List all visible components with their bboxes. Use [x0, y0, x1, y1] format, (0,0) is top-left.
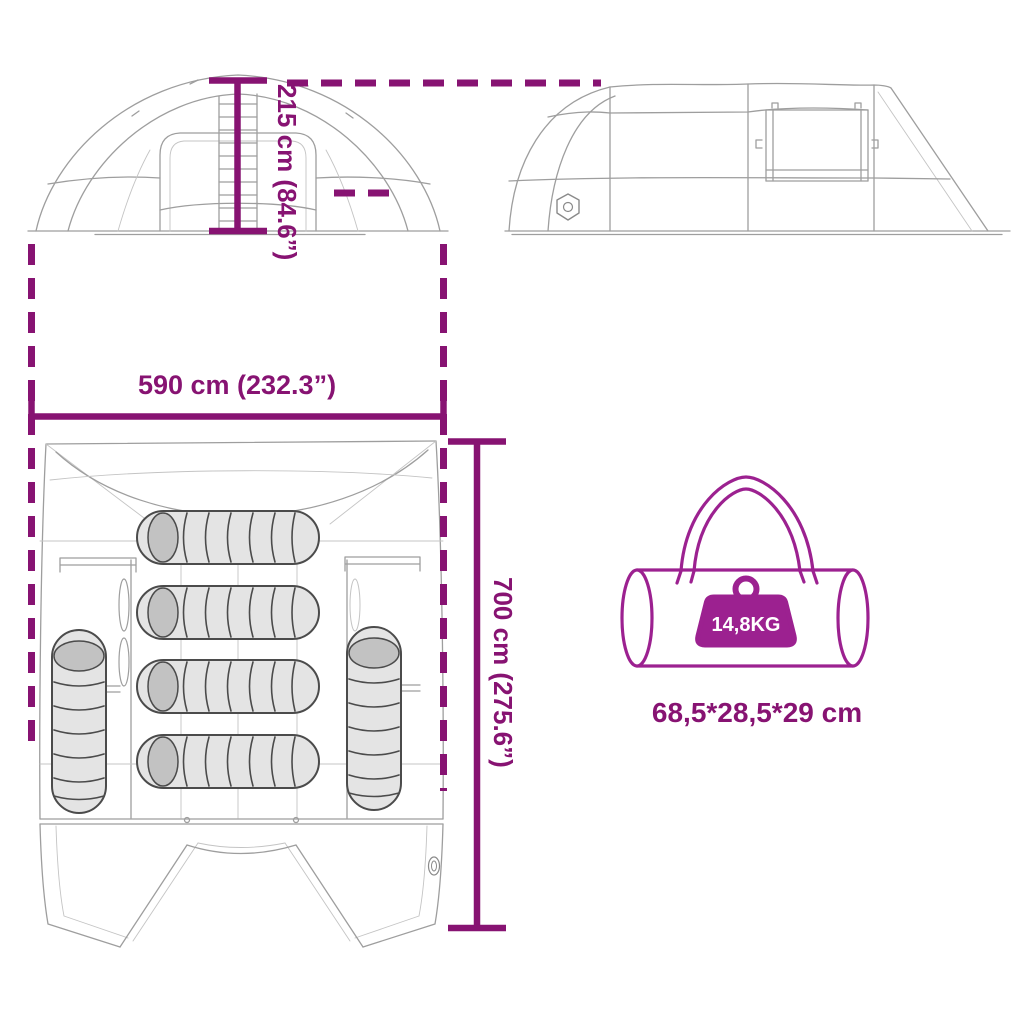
top-view-tent-drawing	[40, 441, 443, 947]
tent-dimension-diagram: 215 cm (84.6”) 590 cm (232.3”) 700 cm (2…	[0, 0, 1024, 1024]
sleeping-bag	[137, 660, 319, 713]
sleeping-bag	[137, 735, 319, 788]
height-dimension-label: 215 cm (84.6”)	[271, 84, 302, 260]
bag-handle	[677, 477, 817, 583]
weight-value-label: 14,8KG	[702, 614, 790, 637]
sleeping-bag	[137, 586, 319, 639]
depth-dimension-label: 700 cm (275.6”)	[487, 577, 518, 768]
sleeping-bag	[52, 630, 106, 813]
diagram-artwork	[0, 0, 1024, 1024]
height-dimension-line	[209, 81, 601, 232]
brand-logo-icon	[557, 194, 579, 220]
side-view-tent-drawing	[505, 83, 1010, 234]
sleeping-bag	[347, 627, 401, 810]
brand-logo-icon	[429, 857, 440, 875]
carry-bag-drawing	[622, 477, 868, 666]
sleeping-bag	[137, 511, 319, 564]
width-dimension-label: 590 cm (232.3”)	[31, 370, 443, 401]
packed-size-label: 68,5*28,5*29 cm	[612, 697, 902, 729]
